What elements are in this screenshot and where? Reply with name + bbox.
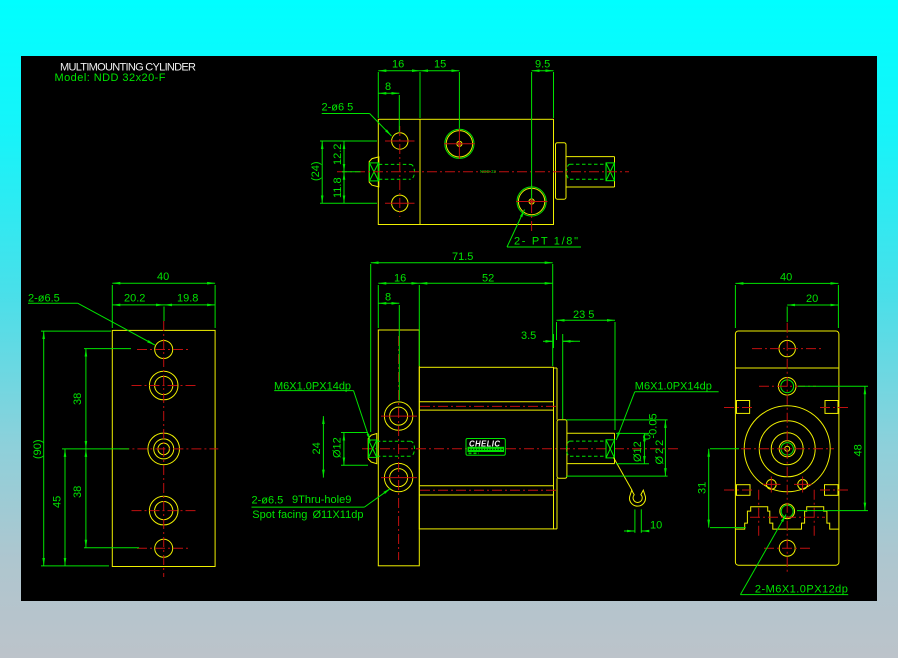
svg-text:52: 52	[482, 273, 494, 285]
svg-text:Ø12: Ø12	[632, 441, 644, 462]
svg-text:38: 38	[72, 393, 84, 405]
svg-text:40: 40	[780, 272, 792, 284]
svg-text:(24): (24)	[310, 161, 322, 181]
svg-text:2-M6X1.0PX12dp: 2-M6X1.0PX12dp	[755, 584, 848, 596]
svg-text:71.5: 71.5	[452, 251, 473, 263]
svg-text:8: 8	[385, 292, 391, 304]
svg-text:(90): (90)	[32, 439, 44, 459]
svg-text:23 5: 23 5	[573, 309, 594, 321]
svg-text:Ø11X11dp: Ø11X11dp	[313, 509, 364, 521]
svg-text:-0.05: -0.05	[648, 413, 660, 438]
svg-text:12.2: 12.2	[332, 144, 344, 165]
svg-text:40: 40	[157, 271, 169, 283]
svg-text:M6X1.0PX14dp: M6X1.0PX14dp	[635, 380, 712, 392]
svg-text:2-ø6.5: 2-ø6.5	[28, 293, 60, 305]
svg-text:2-ø6 5: 2-ø6 5	[322, 102, 354, 114]
svg-text:19.8: 19.8	[177, 293, 198, 305]
svg-text:9Thru-hole9: 9Thru-hole9	[292, 494, 351, 506]
svg-text:48: 48	[853, 444, 865, 456]
svg-text:8: 8	[385, 81, 391, 93]
svg-text:16: 16	[392, 59, 404, 71]
svg-text:Model: NDD 32x20-F: Model: NDD 32x20-F	[55, 72, 166, 84]
svg-text:11.8: 11.8	[332, 177, 344, 198]
svg-text:24: 24	[311, 442, 323, 454]
svg-text:Ø22: Ø22	[654, 438, 666, 465]
svg-text:10: 10	[650, 520, 662, 532]
svg-text:NDD 32: NDD 32	[480, 169, 497, 174]
svg-text:15: 15	[434, 59, 446, 71]
svg-text:2-ø6.5: 2-ø6.5	[252, 495, 284, 507]
svg-text:Spot facing: Spot facing	[252, 509, 307, 521]
svg-text:3.5: 3.5	[521, 330, 536, 342]
svg-text:31: 31	[697, 482, 709, 494]
svg-text:20: 20	[806, 293, 818, 305]
svg-text:45: 45	[52, 496, 64, 508]
svg-text:20.2: 20.2	[124, 293, 145, 305]
svg-text:9.5: 9.5	[535, 59, 550, 71]
svg-text:16: 16	[394, 273, 406, 285]
svg-text:Ø12: Ø12	[332, 437, 344, 458]
svg-text:38: 38	[72, 486, 84, 498]
svg-text:2- PT 1/8": 2- PT 1/8"	[514, 236, 578, 248]
